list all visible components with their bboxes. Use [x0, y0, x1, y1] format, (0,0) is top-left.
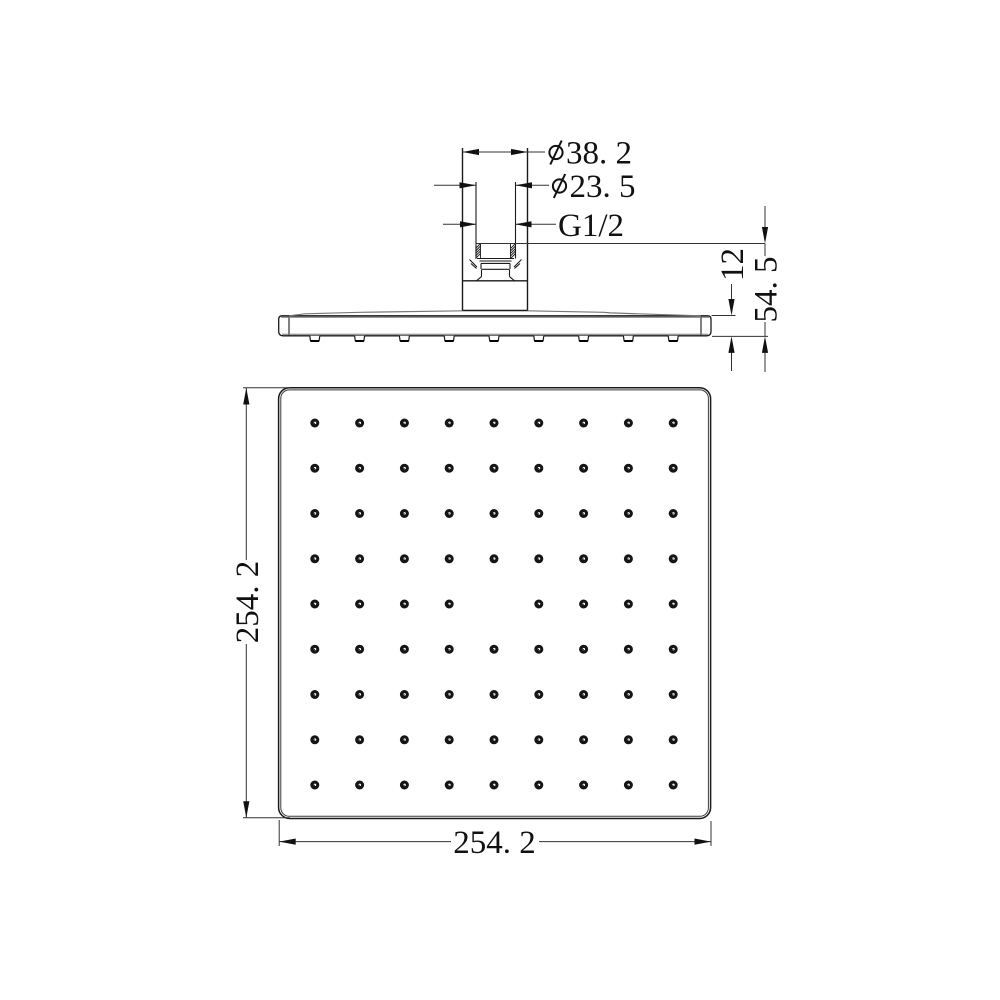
svg-text:23. 5: 23. 5 — [570, 169, 636, 205]
svg-text:54. 5: 54. 5 — [749, 257, 785, 323]
svg-text:38. 2: 38. 2 — [566, 136, 632, 172]
svg-text:254. 2: 254. 2 — [230, 561, 266, 644]
svg-text:254. 2: 254. 2 — [453, 825, 536, 861]
svg-text:12: 12 — [715, 248, 751, 281]
svg-text:G1/2: G1/2 — [558, 208, 624, 244]
